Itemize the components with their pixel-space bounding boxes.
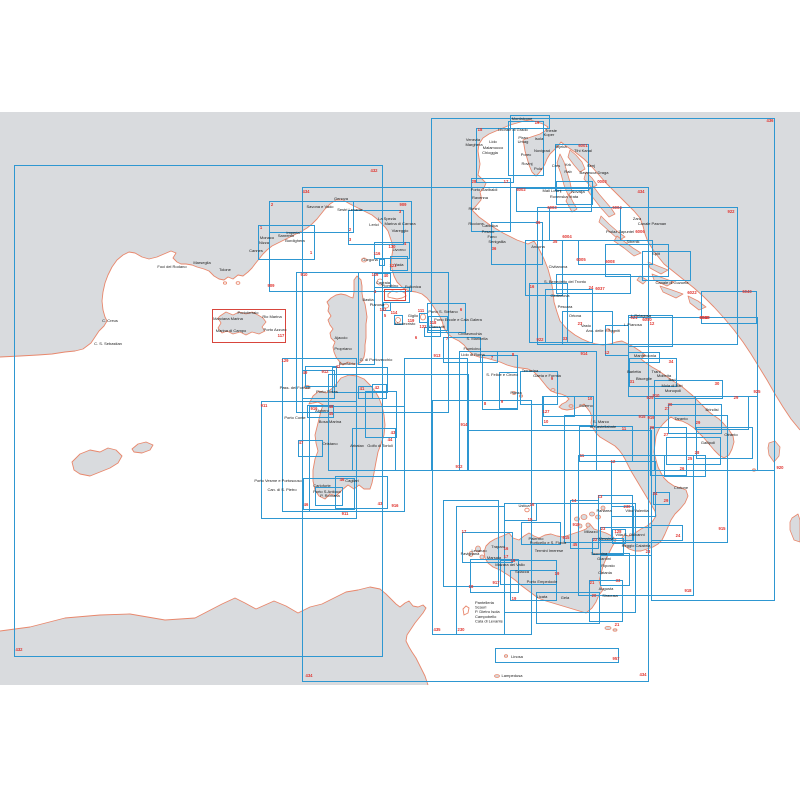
svg-text:Giannutri: Giannutri: [429, 324, 445, 329]
svg-text:6008: 6008: [605, 259, 615, 264]
svg-text:6037: 6037: [595, 286, 605, 291]
svg-text:Rio Marina: Rio Marina: [262, 314, 282, 319]
svg-text:Barletta: Barletta: [627, 369, 642, 374]
svg-text:Bonifacio: Bonifacio: [339, 361, 356, 366]
svg-text:Porto Ercole e Cala Galera: Porto Ercole e Cala Galera: [434, 317, 483, 322]
svg-text:Crotone: Crotone: [674, 485, 689, 490]
svg-text:116: 116: [374, 251, 381, 256]
svg-text:29: 29: [734, 395, 739, 400]
svg-text:909: 909: [268, 283, 276, 288]
svg-text:Mali Losinj: Mali Losinj: [543, 188, 562, 193]
svg-text:Rab: Rab: [564, 169, 572, 174]
svg-text:Marina di Campo: Marina di Campo: [216, 328, 247, 333]
svg-text:Rovenska Vrata: Rovenska Vrata: [550, 194, 579, 199]
svg-text:10: 10: [588, 396, 593, 401]
svg-text:22: 22: [593, 537, 598, 542]
svg-text:6006: 6006: [635, 229, 645, 234]
svg-text:Montecristo: Montecristo: [395, 321, 416, 326]
svg-text:Porec: Porec: [521, 152, 531, 157]
svg-text:Sestri Levante: Sestri Levante: [337, 207, 363, 212]
svg-text:Pianosa: Pianosa: [370, 302, 385, 307]
svg-text:Gallipoli: Gallipoli: [701, 440, 715, 445]
svg-text:6004: 6004: [612, 205, 622, 210]
svg-text:432: 432: [371, 168, 379, 173]
svg-text:Bari: Bari: [668, 377, 675, 382]
svg-text:113: 113: [380, 307, 387, 312]
svg-text:Bosa Marina: Bosa Marina: [319, 419, 342, 424]
svg-text:Giardini: Giardini: [597, 556, 611, 561]
svg-text:13: 13: [598, 494, 603, 499]
svg-text:Monopoli: Monopoli: [665, 388, 681, 393]
svg-text:913: 913: [434, 353, 442, 358]
svg-text:Anc. delle I. Tremiti: Anc. delle I. Tremiti: [586, 328, 620, 333]
svg-text:Marciana Marina: Marciana Marina: [213, 316, 244, 321]
svg-text:Sibenik: Sibenik: [626, 239, 639, 244]
svg-text:Foci del Rodano: Foci del Rodano: [157, 264, 187, 269]
svg-text:Tolone: Tolone: [219, 267, 232, 272]
svg-text:Fiumicino: Fiumicino: [463, 346, 481, 351]
svg-text:21: 21: [615, 622, 620, 627]
svg-text:16: 16: [530, 284, 535, 289]
svg-text:di Castellabate: di Castellabate: [590, 424, 617, 429]
svg-text:Baveruca Draga: Baveruca Draga: [580, 170, 610, 175]
svg-text:432: 432: [16, 647, 24, 652]
svg-text:6010: 6010: [700, 315, 710, 320]
svg-text:918: 918: [685, 588, 693, 593]
svg-text:45: 45: [329, 411, 334, 416]
svg-text:0003: 0003: [597, 179, 607, 184]
svg-text:Umag: Umag: [518, 139, 529, 144]
svg-text:12: 12: [611, 459, 616, 464]
svg-text:114: 114: [391, 310, 398, 315]
svg-text:17: 17: [504, 179, 509, 184]
svg-text:129: 129: [282, 358, 290, 363]
svg-text:Linosa: Linosa: [511, 654, 524, 659]
svg-text:23: 23: [601, 526, 606, 531]
svg-text:36: 36: [492, 246, 497, 251]
svg-text:434: 434: [303, 189, 311, 194]
svg-text:19: 19: [535, 120, 540, 125]
svg-text:17: 17: [504, 554, 509, 559]
svg-text:Viareggio: Viareggio: [392, 228, 410, 233]
svg-text:Otranto: Otranto: [724, 432, 738, 437]
svg-text:Marseglia: Marseglia: [193, 260, 211, 265]
svg-text:Ajaccio: Ajaccio: [335, 335, 349, 340]
svg-text:Follonica: Follonica: [405, 284, 422, 289]
svg-text:16: 16: [530, 502, 535, 507]
svg-text:Canale di Guzuela: Canale di Guzuela: [656, 280, 690, 285]
svg-text:Porto Torres: Porto Torres: [316, 389, 338, 394]
svg-text:6003: 6003: [547, 205, 557, 210]
svg-text:Lampedusa: Lampedusa: [502, 673, 524, 678]
svg-text:Cala di Levante: Cala di Levante: [475, 618, 504, 623]
svg-text:Ortona: Ortona: [569, 313, 582, 318]
svg-text:41: 41: [360, 386, 365, 391]
svg-text:15: 15: [528, 517, 533, 522]
svg-text:43: 43: [378, 501, 383, 506]
svg-text:Villa S. Giovanni: Villa S. Giovanni: [615, 532, 644, 537]
svg-text:27: 27: [665, 406, 670, 411]
svg-text:Vibo Valentia: Vibo Valentia: [625, 508, 649, 513]
svg-text:Novigrad: Novigrad: [534, 148, 550, 153]
svg-text:I. Pianosa: I. Pianosa: [624, 322, 643, 327]
svg-text:911: 911: [342, 511, 349, 516]
svg-text:Marina di Carrara: Marina di Carrara: [384, 221, 416, 226]
svg-text:Porticello e S. Flavia: Porticello e S. Flavia: [530, 540, 567, 545]
svg-text:12: 12: [605, 350, 610, 355]
svg-text:Portoferraio: Portoferraio: [238, 310, 260, 315]
svg-text:Brindisi: Brindisi: [705, 407, 718, 412]
svg-text:Livorno: Livorno: [392, 247, 406, 252]
svg-text:20: 20: [592, 593, 597, 598]
svg-text:Favignana: Favignana: [461, 551, 480, 556]
svg-text:Giglio: Giglio: [408, 313, 419, 318]
svg-text:Genova: Genova: [334, 196, 349, 201]
svg-text:Monfalcone: Monfalcone: [512, 116, 533, 121]
svg-text:Mazara del Vallo: Mazara del Vallo: [495, 562, 525, 567]
svg-text:Cagliari: Cagliari: [345, 478, 359, 483]
svg-text:434: 434: [638, 189, 646, 194]
svg-text:436: 436: [767, 118, 775, 123]
svg-text:Krk: Krk: [565, 162, 571, 167]
svg-text:957: 957: [613, 656, 621, 661]
svg-text:Sciacca: Sciacca: [515, 569, 530, 574]
svg-text:P. Romana: P. Romana: [320, 493, 340, 498]
svg-text:6005: 6005: [576, 257, 586, 262]
svg-text:43: 43: [391, 430, 396, 435]
svg-text:Rovinj: Rovinj: [521, 161, 532, 166]
svg-text:Oristano: Oristano: [322, 441, 338, 446]
svg-text:Alghero: Alghero: [315, 408, 330, 413]
svg-text:31: 31: [630, 379, 635, 384]
svg-text:Ancona: Ancona: [531, 244, 545, 249]
svg-text:Messina: Messina: [599, 536, 615, 541]
svg-text:S. Benedetto del Tronto: S. Benedetto del Tronto: [544, 279, 587, 284]
svg-text:434: 434: [306, 673, 314, 678]
svg-text:Cattolica: Cattolica: [482, 223, 498, 228]
svg-text:Senigallia: Senigallia: [488, 239, 506, 244]
svg-text:S. Felice e Circeo: S. Felice e Circeo: [486, 372, 518, 377]
svg-text:29: 29: [664, 498, 669, 503]
svg-text:Gela: Gela: [561, 595, 570, 600]
svg-text:914: 914: [461, 422, 469, 427]
svg-text:Porto S. Stefano: Porto S. Stefano: [428, 309, 458, 314]
svg-text:26: 26: [650, 425, 655, 430]
svg-text:Isola: Isola: [535, 136, 544, 141]
svg-text:912: 912: [456, 464, 464, 469]
svg-text:28: 28: [472, 179, 477, 184]
svg-text:Split: Split: [652, 251, 661, 256]
svg-text:Trapani: Trapani: [491, 544, 505, 549]
svg-text:46: 46: [304, 502, 309, 507]
svg-text:Augusta: Augusta: [599, 586, 614, 591]
svg-text:Porto Vesme e Portoscuso: Porto Vesme e Portoscuso: [254, 478, 302, 483]
svg-text:17: 17: [462, 529, 467, 534]
svg-text:Reggio Calabria: Reggio Calabria: [622, 543, 651, 548]
svg-text:Gaeta e Formia: Gaeta e Formia: [533, 373, 562, 378]
svg-text:Tihi Kanal: Tihi Kanal: [574, 148, 592, 153]
svg-text:19: 19: [555, 571, 560, 576]
svg-text:Koper: Koper: [544, 132, 555, 137]
svg-text:45: 45: [573, 542, 578, 547]
svg-text:11: 11: [580, 453, 585, 458]
svg-text:Golfo di Tortoli: Golfo di Tortoli: [367, 443, 393, 448]
svg-text:48: 48: [329, 404, 334, 409]
svg-text:Taranto: Taranto: [674, 416, 688, 421]
svg-text:25: 25: [688, 456, 693, 461]
svg-text:Ponza: Ponza: [510, 390, 522, 395]
svg-text:24: 24: [676, 533, 681, 538]
svg-text:Bastia: Bastia: [362, 297, 374, 302]
svg-text:Chioggia: Chioggia: [482, 150, 499, 155]
svg-text:Gorgona: Gorgona: [362, 257, 378, 262]
svg-text:21: 21: [590, 580, 595, 585]
svg-text:34: 34: [669, 359, 674, 364]
svg-text:23: 23: [646, 549, 651, 554]
svg-text:Marghera: Marghera: [465, 142, 483, 147]
svg-text:918: 918: [573, 522, 581, 527]
svg-text:S. Marinella: S. Marinella: [466, 336, 488, 341]
svg-text:Vada: Vada: [394, 262, 404, 267]
svg-text:Rimini: Rimini: [468, 206, 479, 211]
svg-text:Termini Imerese: Termini Imerese: [535, 548, 564, 553]
svg-text:I. Pelagosa: I. Pelagosa: [631, 313, 652, 318]
svg-text:Nizza: Nizza: [259, 240, 270, 245]
svg-text:117: 117: [278, 333, 285, 338]
svg-text:434: 434: [640, 672, 648, 677]
svg-text:Lido di Roma: Lido di Roma: [461, 352, 485, 357]
svg-text:Senj: Senj: [587, 163, 595, 168]
svg-text:18: 18: [478, 127, 483, 132]
svg-text:Pola: Pola: [534, 166, 543, 171]
svg-text:914: 914: [581, 351, 589, 356]
svg-text:Taormina: Taormina: [591, 551, 608, 556]
svg-text:Lido: Lido: [489, 139, 497, 144]
svg-text:Arbatax: Arbatax: [350, 443, 364, 448]
svg-text:11: 11: [622, 426, 627, 431]
svg-text:35: 35: [553, 239, 558, 244]
svg-text:111: 111: [418, 308, 425, 313]
svg-text:Porto Azzuro: Porto Azzuro: [264, 327, 288, 332]
svg-text:33: 33: [616, 578, 621, 583]
svg-text:917: 917: [493, 580, 501, 585]
svg-text:Licata: Licata: [537, 594, 548, 599]
svg-text:6022: 6022: [687, 290, 697, 295]
svg-text:122: 122: [420, 324, 428, 329]
svg-text:10: 10: [544, 419, 549, 424]
svg-text:Riposto: Riposto: [601, 563, 615, 568]
svg-text:Prolaz Zapuntel: Prolaz Zapuntel: [606, 229, 634, 234]
svg-text:Porto Conte: Porto Conte: [284, 415, 306, 420]
svg-text:19: 19: [512, 596, 517, 601]
svg-text:Lerici: Lerici: [369, 222, 379, 227]
svg-text:6004: 6004: [562, 234, 572, 239]
svg-text:916: 916: [392, 503, 400, 508]
svg-text:Marsala: Marsala: [487, 555, 502, 560]
svg-text:30: 30: [715, 381, 720, 386]
svg-text:C. Creus: C. Creus: [102, 318, 118, 323]
svg-text:910: 910: [301, 272, 309, 277]
svg-text:27: 27: [664, 432, 669, 437]
svg-text:910: 910: [653, 393, 661, 398]
svg-text:6002: 6002: [516, 187, 526, 192]
svg-text:230: 230: [458, 627, 466, 632]
svg-text:49: 49: [303, 370, 308, 375]
svg-text:Porto Garibaldi: Porto Garibaldi: [471, 187, 498, 192]
svg-text:40: 40: [384, 273, 389, 278]
svg-text:28: 28: [695, 450, 700, 455]
svg-text:14: 14: [572, 498, 577, 503]
svg-text:26: 26: [680, 466, 685, 471]
svg-text:919: 919: [648, 415, 656, 420]
svg-text:Milazzo: Milazzo: [584, 529, 598, 534]
svg-text:Ustica: Ustica: [518, 503, 530, 508]
svg-text:Piombino: Piombino: [382, 283, 399, 288]
svg-text:29: 29: [696, 420, 701, 425]
svg-text:44: 44: [388, 437, 393, 442]
svg-text:Cannes: Cannes: [249, 248, 263, 253]
svg-text:36: 36: [536, 220, 541, 225]
svg-text:Giulianova: Giulianova: [551, 293, 571, 298]
svg-text:24: 24: [589, 285, 594, 290]
svg-text:Pass. dei Fornelli: Pass. dei Fornelli: [280, 385, 311, 390]
svg-text:18: 18: [469, 584, 474, 589]
svg-text:911: 911: [261, 403, 268, 408]
svg-text:915: 915: [719, 526, 727, 531]
svg-text:925: 925: [754, 389, 762, 394]
svg-text:Litorale di Grado: Litorale di Grado: [498, 127, 528, 132]
svg-text:Propriano: Propriano: [334, 346, 352, 351]
svg-text:47: 47: [299, 440, 304, 445]
svg-text:Salerno: Salerno: [579, 403, 594, 408]
svg-text:6040: 6040: [742, 289, 752, 294]
svg-text:909: 909: [400, 202, 408, 207]
svg-text:127: 127: [543, 409, 551, 414]
svg-text:Cres: Cres: [552, 163, 560, 168]
svg-text:915: 915: [639, 414, 647, 419]
svg-text:920: 920: [777, 465, 785, 470]
svg-text:Bordighera: Bordighera: [285, 238, 305, 243]
svg-text:Carloforte: Carloforte: [313, 483, 331, 488]
svg-text:34: 34: [653, 491, 658, 496]
svg-text:922: 922: [537, 337, 545, 342]
svg-text:Manfredonia: Manfredonia: [634, 353, 657, 358]
svg-text:33: 33: [563, 336, 568, 341]
svg-text:Pescara: Pescara: [558, 304, 573, 309]
svg-text:Can. di S. Pietro: Can. di S. Pietro: [267, 487, 297, 492]
svg-text:435: 435: [434, 627, 442, 632]
svg-text:Porto Empedocle: Porto Empedocle: [527, 579, 558, 584]
svg-text:912: 912: [322, 369, 330, 374]
svg-text:Catania: Catania: [598, 570, 613, 575]
svg-text:42: 42: [375, 385, 380, 390]
svg-text:Siracusa: Siracusa: [602, 593, 618, 598]
svg-text:Rijeka: Rijeka: [555, 144, 567, 149]
svg-text:Ravenna: Ravenna: [472, 195, 489, 200]
svg-text:C. S. Sebastian: C. S. Sebastian: [94, 341, 122, 346]
svg-text:Canale Pasman: Canale Pasman: [638, 221, 666, 226]
svg-text:G. di Portovecchio: G. di Portovecchio: [360, 357, 393, 362]
svg-text:46: 46: [340, 477, 345, 482]
svg-text:116: 116: [372, 272, 379, 277]
svg-text:Panarea: Panarea: [596, 508, 612, 513]
svg-text:Savona e Vado: Savona e Vado: [306, 204, 334, 209]
svg-text:Bisceglie: Bisceglie: [636, 376, 653, 381]
svg-text:Civitanova: Civitanova: [549, 264, 568, 269]
svg-text:922: 922: [728, 209, 736, 214]
